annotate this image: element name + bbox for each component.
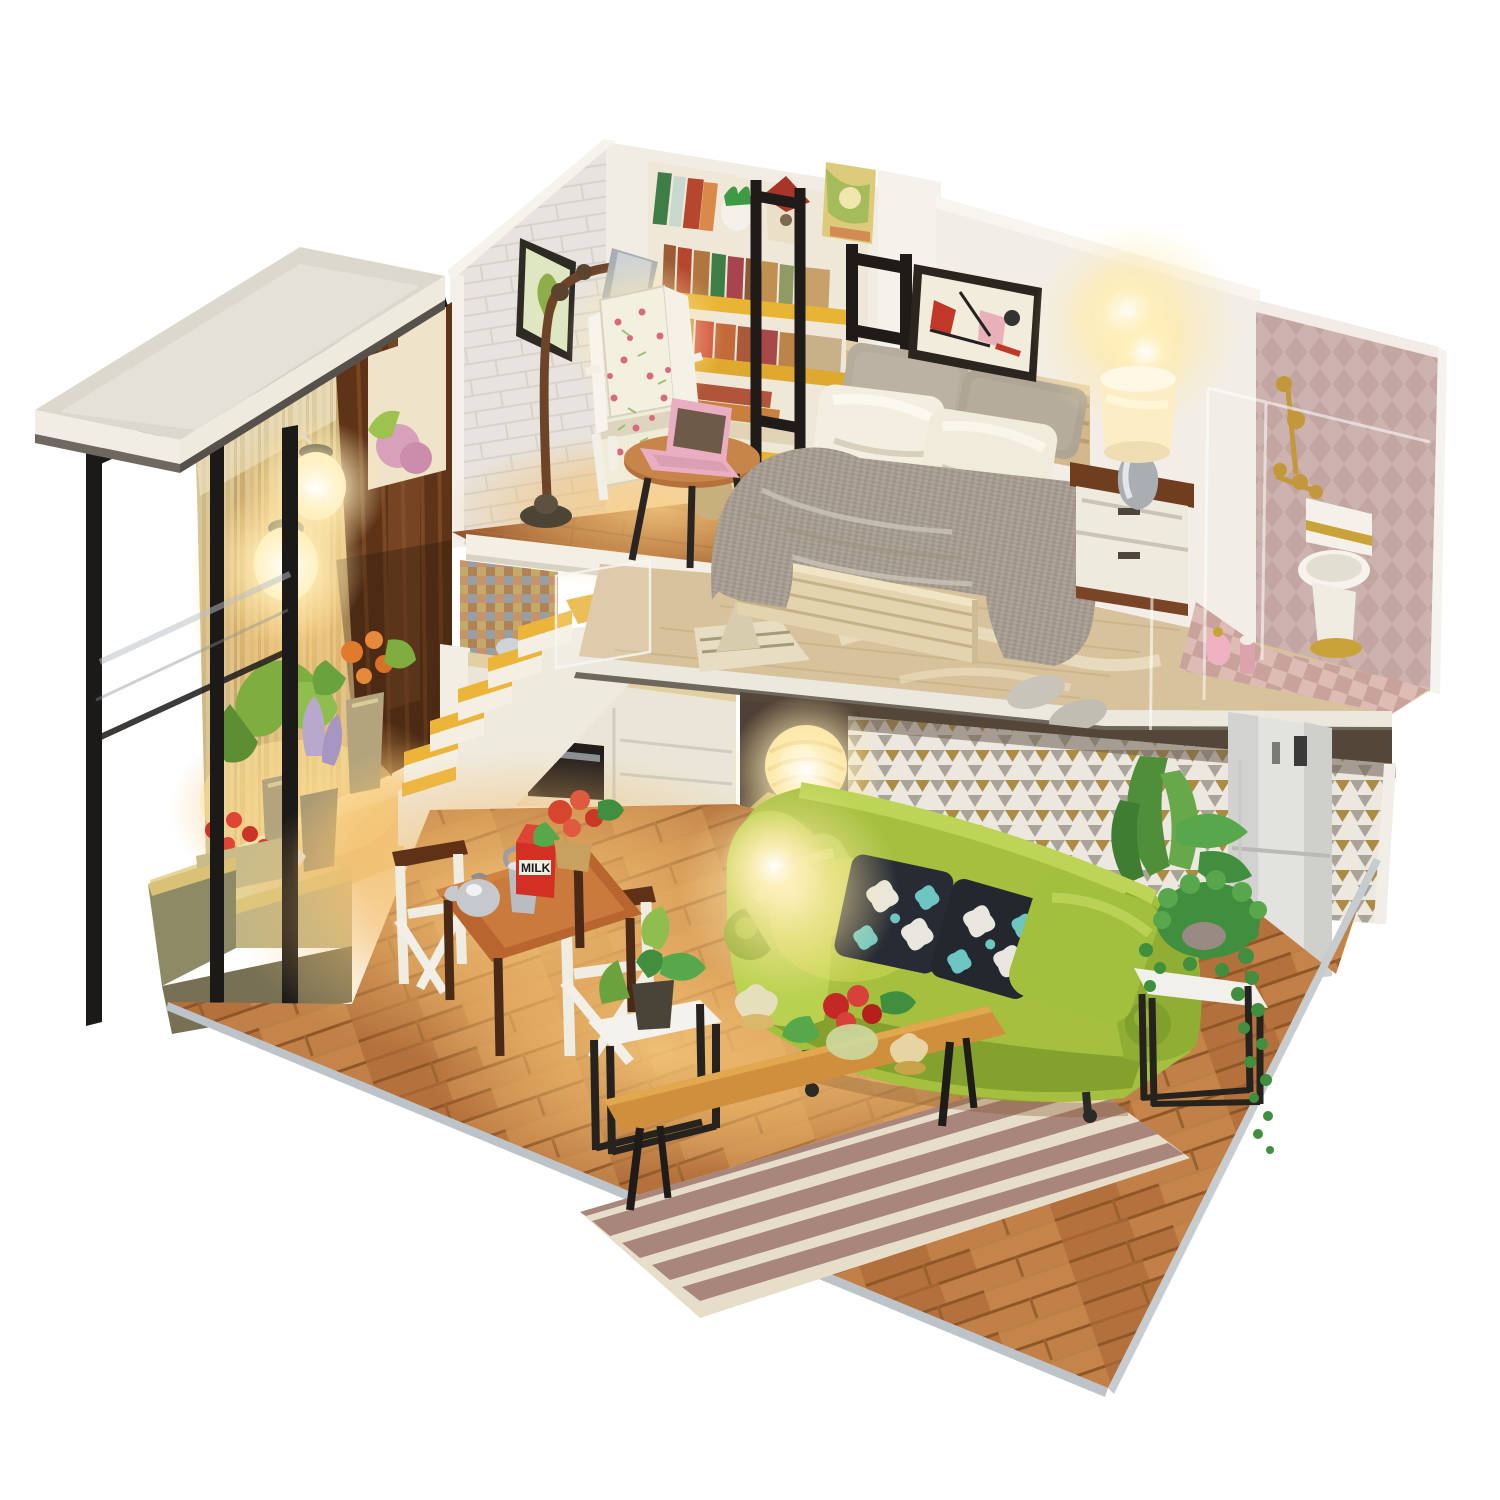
svg-text:MILK: MILK xyxy=(521,861,551,875)
